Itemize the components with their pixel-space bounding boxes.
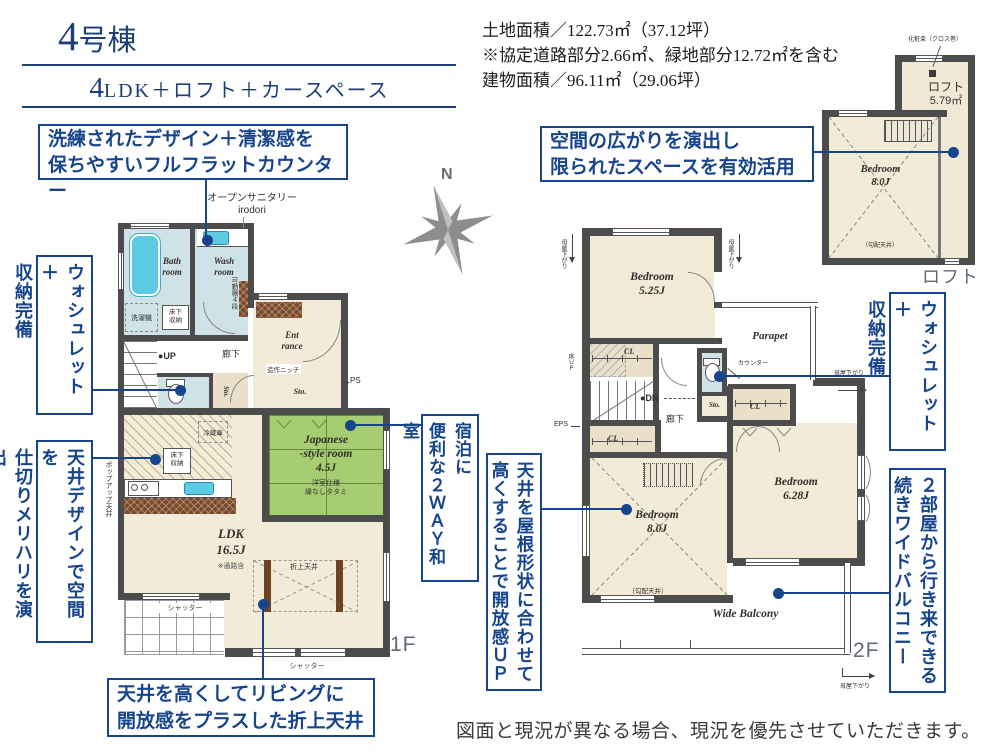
closet-label: CL — [608, 434, 618, 443]
kitchen-sink — [184, 482, 214, 495]
header-rule-2 — [22, 106, 456, 108]
wall — [155, 373, 213, 377]
balcony-railing — [844, 563, 851, 653]
window — [915, 55, 943, 62]
wall — [262, 515, 390, 522]
wide-balcony-label: Wide Balcony — [698, 608, 793, 620]
wall — [790, 384, 796, 426]
moya-sagari-label: 母屋下がり — [840, 681, 870, 690]
storage2-label: Sto. — [222, 380, 230, 404]
hallway-2f-label: 廊下 — [666, 412, 684, 425]
wall — [582, 338, 722, 344]
window — [383, 430, 390, 470]
bath-label: Bath room — [150, 256, 194, 278]
header-rule-1 — [22, 64, 456, 66]
connector — [90, 457, 155, 459]
closet-door-mark — [276, 416, 292, 434]
connector-dot — [202, 235, 213, 246]
compass-icon — [385, 167, 511, 293]
callout-coffered: 天井を高くしてリビングに 開放感をプラスした折上天井 — [107, 678, 375, 737]
closet-door-mark — [311, 416, 327, 434]
japanese-room-note: 洋室仕様 縁なしタタミ — [273, 479, 379, 497]
building-number: 4 — [58, 13, 79, 59]
area-note: ※協定道路部分2.66㎡、緑地部分12.72㎡を含む — [482, 43, 882, 68]
burner — [131, 484, 138, 491]
wash-label: Wash room — [200, 256, 248, 278]
connector-dot — [948, 147, 959, 158]
counter-label: カウンター — [738, 358, 768, 367]
door-gap — [714, 272, 722, 302]
window-shutter — [142, 593, 200, 600]
ldk-note: ※通路含 — [196, 561, 266, 571]
decorative-post — [929, 70, 936, 77]
shoe-cabinet — [256, 302, 302, 318]
window — [745, 558, 800, 566]
eps-label: EPS — [554, 421, 568, 428]
window — [857, 496, 865, 521]
bedroom-628-label: Bedroom 6.28J — [737, 475, 855, 503]
wall — [895, 55, 902, 117]
wall-thin — [938, 117, 941, 258]
window — [383, 552, 390, 602]
layout-rest: LDK＋ロフト＋カースペース — [104, 80, 390, 102]
window-shutter — [300, 648, 346, 657]
window — [130, 223, 170, 229]
niche-label: 造作ニッチ — [266, 364, 301, 374]
eps-tick — [571, 426, 580, 427]
connector — [540, 508, 626, 510]
railing-tick — [690, 640, 691, 648]
loft-bedroom-label: Bedroom 8.0J — [843, 163, 918, 189]
storage-2f-label: Sto. — [702, 401, 727, 409]
floor-label-2f: 2F — [853, 639, 880, 663]
balcony-railing — [582, 648, 850, 655]
movable-shelf — [239, 281, 248, 317]
window — [258, 293, 288, 300]
page-title: 4号棟 — [58, 12, 137, 60]
loft-size-label: 5.79㎡ — [920, 92, 972, 108]
closet-door-mark — [776, 424, 792, 442]
japanese-room-label: Japanese -style room 4.5J — [273, 433, 379, 475]
connector-dot — [150, 454, 161, 465]
ps-tick — [341, 382, 349, 383]
connector-dot — [773, 588, 784, 599]
ldk-label: LDK 16.5J — [196, 526, 266, 558]
wall — [697, 416, 727, 422]
window — [612, 228, 670, 236]
floorplan-flyer: 4号棟 4LDK＋ロフト＋カースペース 土地面積／122.73㎡（37.12坪）… — [0, 0, 1000, 752]
connector-dot — [621, 504, 632, 515]
wall — [341, 293, 348, 408]
callout-loft: 空間の広がりを演出し 限られたスペースを有効活用 — [540, 126, 814, 182]
parapet-railing — [722, 302, 818, 308]
moya-arrow-right — [842, 676, 874, 677]
bedroom-525-label: Bedroom 5.25J — [592, 270, 712, 298]
callout-ceiling-zone: 天井デザインで空間を 仕切りメリハリを演出 — [36, 440, 93, 643]
moya-arrow-down — [739, 234, 740, 262]
storage-label: Sto. — [285, 387, 315, 396]
window — [118, 252, 124, 290]
connector — [205, 174, 207, 240]
wall — [728, 384, 796, 389]
shutter-label: シャッター — [150, 603, 220, 613]
wall — [813, 378, 865, 386]
coffered-label: 折上天井 — [288, 562, 320, 572]
shutter-label: シャッター — [272, 661, 342, 671]
stairs-dn-label: ●DN — [640, 393, 658, 403]
window — [857, 455, 865, 490]
wall — [697, 392, 727, 396]
moya-arrow-down — [572, 234, 573, 262]
connector-dot — [175, 385, 186, 396]
entrance-label: Ent rance — [272, 330, 312, 352]
bedroom-80-label: Bedroom 8.0J — [592, 508, 722, 536]
wall — [118, 408, 269, 415]
sloped-ceiling-note: （勾配天井） — [608, 585, 688, 595]
open-sanitary-label: オープンサニタリー irodori — [192, 193, 312, 217]
loft-sloped-note: （勾配天井） — [850, 240, 910, 249]
parapet-label: Parapet — [738, 330, 802, 342]
wall — [262, 408, 390, 415]
land-area: 土地面積／122.73㎡（37.12坪） — [482, 18, 882, 43]
label-leader — [243, 217, 244, 228]
wall — [262, 408, 269, 522]
connector-dot — [714, 371, 725, 382]
connector — [812, 151, 952, 153]
callout-counter: 洗練されたデザイン＋清潔感を 保ちやすいフルフラットカウンター — [38, 124, 348, 180]
wall — [697, 348, 702, 420]
floor-label-loft: ロフト — [922, 263, 979, 289]
callout-washitsu: 宿泊に 便利な２ＷＡＹ和室 — [421, 414, 479, 582]
closet-rod — [592, 355, 652, 362]
closet-door-mark — [742, 424, 758, 442]
underfloor-label: 床下 収納 — [162, 309, 189, 325]
wall — [190, 229, 195, 335]
callout-washlet-2f: ウォシュレット＋ 収納完備 — [889, 292, 946, 451]
moya-sagari-label: 母屋下がり — [559, 234, 568, 274]
wall — [653, 344, 659, 424]
connector — [777, 592, 891, 594]
connector-dot — [345, 420, 356, 431]
kitchen-underfloor-label: 床下 収納 — [163, 452, 191, 468]
hallway-label: 廊下 — [214, 347, 248, 360]
callout-washlet-1f: ウォシュレット＋ 収納完備 — [36, 255, 93, 415]
popup-ceiling-label: ポップアップ天井 — [103, 456, 113, 522]
connector — [90, 389, 180, 391]
window — [838, 110, 868, 117]
window — [582, 505, 590, 557]
railing-tick — [620, 640, 621, 648]
layout-type: 4LDK＋ロフト＋カースペース — [23, 72, 456, 105]
moya-sagari-label: 母屋下がり — [726, 234, 735, 274]
floor-up-label: 床ＵＰ — [566, 346, 575, 378]
stairs-up-label: ●UP — [158, 351, 176, 361]
closet-rod — [592, 438, 652, 445]
area-info: 土地面積／122.73㎡（37.12坪） ※協定道路部分2.66㎡、緑地部分12… — [482, 18, 882, 93]
decorative-post-label: 化粧束（クロス巻） — [908, 34, 998, 43]
window — [252, 648, 296, 657]
dn-leader — [664, 398, 700, 399]
closet-rod — [735, 400, 787, 407]
moya-arrow-right — [838, 390, 866, 391]
building-area: 建物面積／96.11㎡（29.06坪） — [482, 68, 882, 93]
wall — [209, 373, 213, 412]
callout-sloped: 天井を屋根形状に合わせて 高くすることで開放感ＵＰ — [486, 453, 542, 691]
disclaimer: 図面と現況が異なる場合、現況を優先させていただきます。 — [456, 716, 981, 743]
ps-label: PS — [350, 376, 361, 385]
parapet-railing — [810, 306, 816, 380]
burner — [141, 484, 148, 491]
counter-leader — [727, 368, 740, 379]
wall — [727, 423, 733, 563]
callout-balcony: ２部屋から行き来できる 続きワイドバルコニー — [889, 468, 946, 693]
connector — [262, 603, 264, 680]
casement-window-arc — [865, 455, 879, 495]
closet-label: CL — [624, 347, 634, 356]
wall — [582, 420, 659, 426]
kitchen-counter-front — [124, 498, 236, 514]
casement-window-arc — [865, 494, 877, 528]
building-suffix: 号棟 — [79, 25, 137, 57]
washer-label: 洗濯機 — [126, 313, 157, 323]
shelf-label: 可動棚４段 — [228, 272, 238, 314]
closet-label: CL — [750, 402, 760, 411]
floor-label-1f: 1F — [390, 633, 417, 657]
connector-dot — [258, 599, 269, 610]
ceiling-beam — [336, 560, 343, 612]
wall — [822, 110, 829, 265]
layout-num: 4 — [89, 72, 104, 104]
fridge-label: 冷蔵庫 — [198, 427, 228, 437]
